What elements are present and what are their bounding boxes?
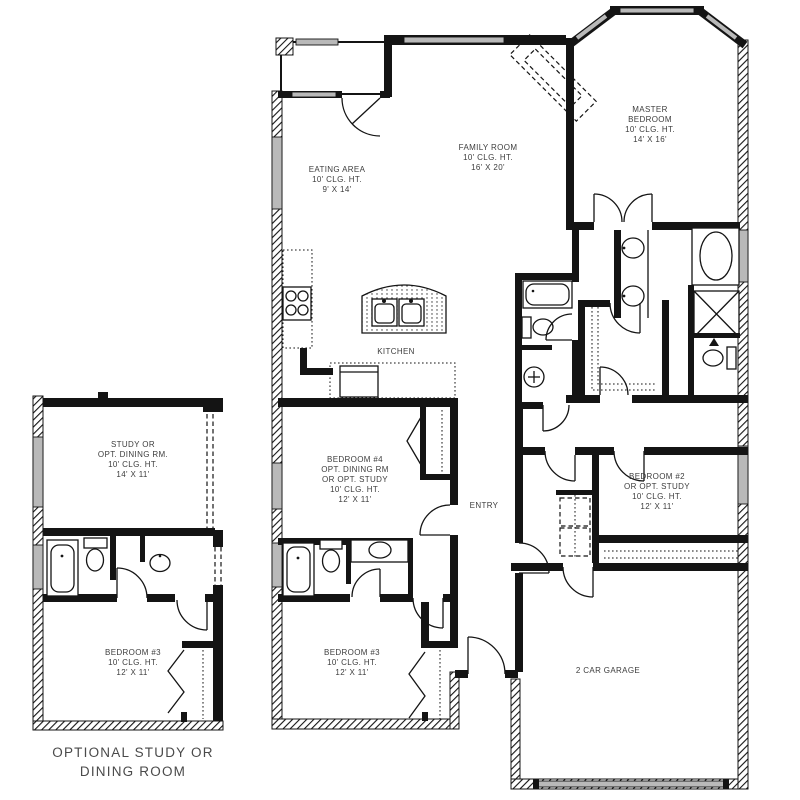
- floorplan-page: EATING AREA 10' CLG. HT. 9' X 14' FAMILY…: [0, 0, 800, 800]
- master-double-doors: [594, 194, 652, 222]
- kitchen-island: [362, 285, 446, 333]
- bedroom3-walls: [421, 602, 429, 645]
- room-label-bedroom3-main: BEDROOM #3 10' CLG. HT. 12' X 11': [324, 648, 380, 678]
- room-label-garage: 2 CAR GARAGE: [576, 666, 640, 676]
- kitchen-cooktop: [283, 287, 311, 320]
- master-walkin-closet: [578, 300, 669, 399]
- washer-dryer: [560, 495, 590, 558]
- bedroom4-walls: [278, 398, 458, 645]
- main-windows: [272, 137, 748, 587]
- optional-bathtub: [47, 540, 78, 596]
- garage-walls: [511, 563, 748, 597]
- master-suite-hall-wall: [566, 367, 748, 403]
- optional-wall-dashed: [207, 414, 213, 528]
- room-label-study: STUDY OR OPT. DINING RM. 10' CLG. HT. 14…: [98, 440, 168, 480]
- room-label-bedroom2: BEDROOM #2 OR OPT. STUDY 10' CLG. HT. 12…: [624, 472, 690, 512]
- hall-bath-tub: [523, 281, 572, 308]
- family-room-walls: [384, 35, 566, 97]
- room-label-kitchen: KITCHEN: [377, 347, 415, 357]
- room-label-master-bedroom: MASTER BEDROOM 10' CLG. HT. 14' X 16': [625, 105, 675, 145]
- eating-area-walls: [278, 91, 390, 136]
- covered-patio: [276, 38, 385, 94]
- secondary-bath-toilet: [320, 540, 342, 572]
- master-garden-tub: [692, 228, 739, 285]
- secondary-bath-tub: [283, 543, 314, 596]
- hall-bath-toilet: [522, 317, 553, 338]
- room-label-bedroom4: BEDROOM #4 OPT. DINING RM OR OPT. STUDY …: [321, 455, 389, 505]
- floorplan-drawing: [0, 0, 800, 800]
- room-label-family-room: FAMILY ROOM 10' CLG. HT. 16' X 20': [459, 143, 518, 173]
- room-label-eating-area: EATING AREA 10' CLG. HT. 9' X 14': [309, 165, 366, 195]
- secondary-bath-vanity: [351, 540, 408, 562]
- optional-bedroom3-closet: [168, 641, 215, 722]
- hall-bath-doors: [543, 314, 572, 431]
- front-door: [468, 637, 505, 674]
- master-toilet: [688, 337, 736, 403]
- room-label-entry: ENTRY: [470, 501, 499, 511]
- optional-toilet: [84, 538, 107, 571]
- corner-fireplace: [510, 35, 596, 121]
- room-label-bedroom3-optional: BEDROOM #3 10' CLG. HT. 12' X 11': [105, 648, 161, 678]
- master-shower: [688, 285, 740, 346]
- hall-bath-pedestal-sink: [524, 367, 544, 387]
- utility-room: [523, 447, 599, 563]
- optional-sink: [150, 555, 170, 572]
- optional-plan-caption: OPTIONAL STUDY OR DINING ROOM: [52, 744, 213, 782]
